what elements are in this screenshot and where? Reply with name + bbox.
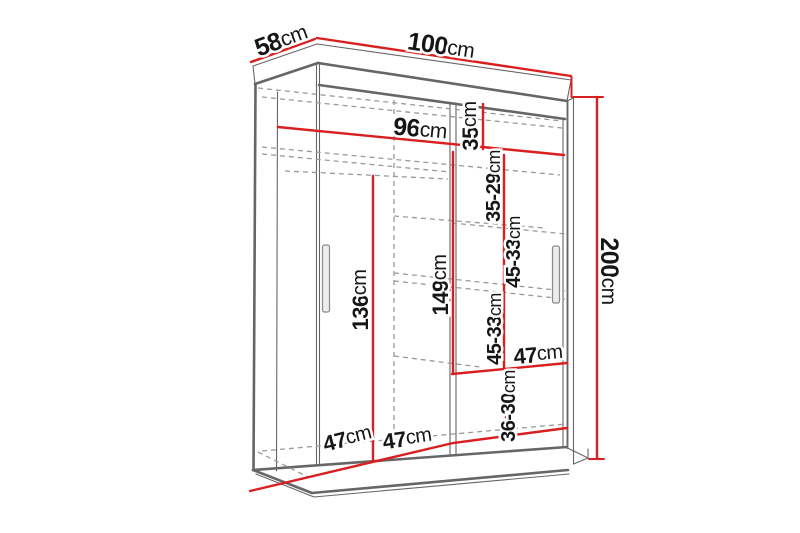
right-foot-diagonal (568, 448, 589, 458)
plinth-bottom-edge (312, 470, 568, 493)
shelf-2-back (394, 273, 565, 291)
dim-label-bottom-left-width: 47cm (320, 420, 374, 456)
front-bottom-edge (253, 447, 567, 470)
shelf-2-front (394, 281, 565, 299)
dim-label-shelf-gap-1: 35-29cm (483, 150, 505, 222)
top-shelf-back-b (262, 154, 450, 172)
left-inner-edge (277, 92, 278, 471)
wardrobe-drawing: 58cm 100cm 200cm 96cm 35cm 35-29cm 45-33… (0, 0, 800, 533)
wardrobe-diagram: 58cm 100cm 200cm 96cm 35cm 35-29cm 45-33… (0, 0, 800, 533)
dim-label-height: 200cm (595, 237, 623, 304)
dim-label-top-shelf: 35cm (458, 101, 483, 150)
plinth-bottom-inner (314, 474, 569, 497)
top-panel-left-front-edge (255, 63, 318, 84)
dim-label-width: 100cm (406, 27, 477, 65)
right-door-handle (553, 246, 560, 303)
left-outer-edge (254, 84, 256, 470)
top-panel-left-corner (253, 66, 255, 84)
floor-left-depth (258, 452, 308, 477)
opening-top-edge (319, 85, 565, 119)
top-panel-right-edge (567, 80, 571, 101)
dim-label-shelf-gap-3: 45-33cm (484, 293, 506, 365)
dim-label-shelf-gap-2: 45-33cm (503, 216, 525, 288)
dim-label-left-section-height: 136cm (348, 270, 373, 331)
dim-label-depth: 58cm (251, 18, 311, 63)
dimension-lines (250, 38, 604, 491)
right-foot-bottom (574, 458, 589, 464)
left-door-handle (323, 245, 330, 312)
hanging-rail (285, 171, 448, 179)
dim-label-right-section-height: 149cm (428, 255, 453, 316)
plinth-left-slant (253, 470, 312, 493)
dim-label-shelf-gap-4: 36-30cm (498, 370, 520, 442)
shelf-3-back (394, 356, 480, 367)
